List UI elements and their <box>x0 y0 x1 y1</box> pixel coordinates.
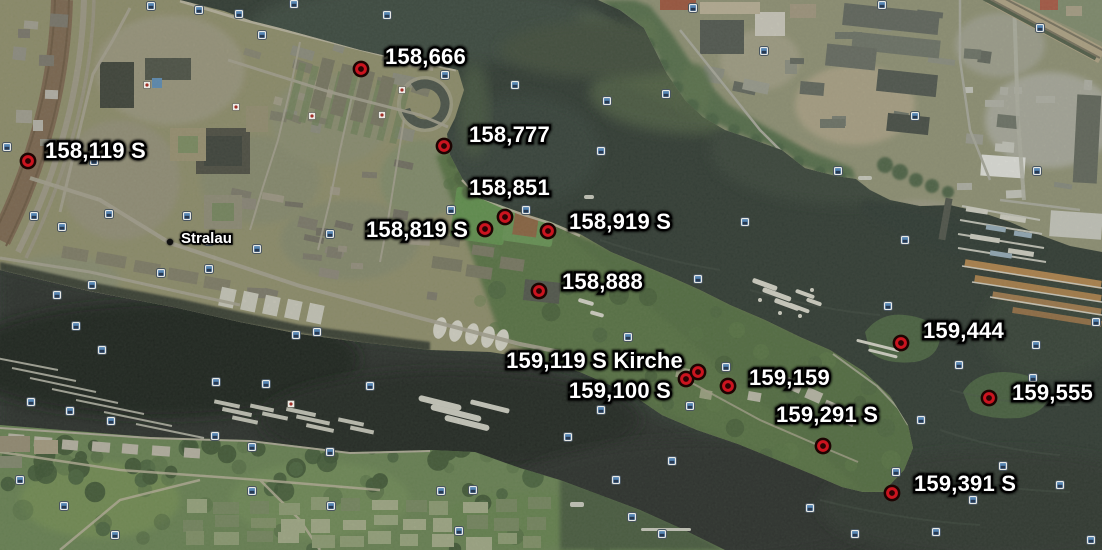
svg-text:159,119 S Kirche: 159,119 S Kirche <box>506 348 683 373</box>
svg-text:158,119 S: 158,119 S <box>45 138 146 163</box>
svg-text:Stralau: Stralau <box>181 230 232 247</box>
svg-text:158,919 S: 158,919 S <box>569 209 671 234</box>
svg-text:159,100 S: 159,100 S <box>569 378 671 403</box>
svg-text:159,159: 159,159 <box>749 365 830 390</box>
svg-text:158,777: 158,777 <box>469 122 550 147</box>
svg-text:159,444: 159,444 <box>923 318 1004 343</box>
svg-text:159,391 S: 159,391 S <box>914 471 1016 496</box>
svg-text:159,291 S: 159,291 S <box>776 402 878 427</box>
svg-text:158,819 S: 158,819 S <box>366 217 468 242</box>
svg-text:159,555: 159,555 <box>1012 380 1093 405</box>
svg-text:158,851: 158,851 <box>469 175 550 200</box>
svg-text:158,666: 158,666 <box>385 44 466 69</box>
svg-text:158,888: 158,888 <box>562 269 643 294</box>
